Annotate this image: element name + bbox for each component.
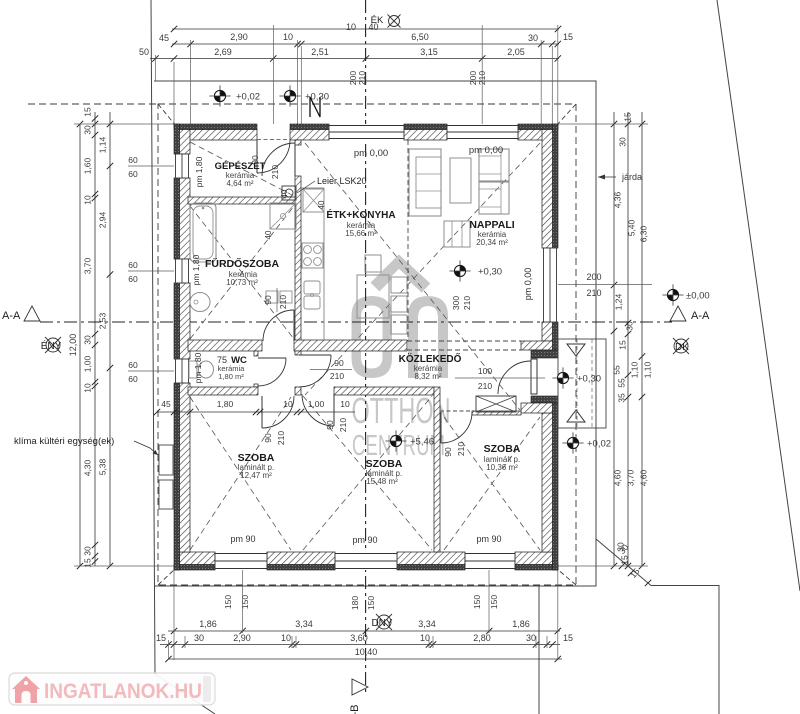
svg-text:6,50: 6,50 bbox=[411, 32, 429, 42]
svg-text:210: 210 bbox=[278, 295, 288, 309]
svg-text:ÉTK+KONYHA: ÉTK+KONYHA bbox=[326, 208, 395, 221]
svg-text:2,69: 2,69 bbox=[214, 47, 232, 57]
svg-text:180: 180 bbox=[350, 596, 360, 610]
svg-text:4,30: 4,30 bbox=[83, 459, 93, 476]
svg-text:150: 150 bbox=[366, 596, 376, 610]
svg-text:INGATLANOK.HU: INGATLANOK.HU bbox=[44, 680, 202, 703]
svg-text:210: 210 bbox=[456, 442, 466, 456]
svg-text:100: 100 bbox=[478, 366, 492, 376]
svg-text:3,70: 3,70 bbox=[626, 469, 636, 486]
svg-text:10: 10 bbox=[340, 399, 350, 409]
svg-text:150: 150 bbox=[240, 595, 250, 609]
svg-text:±0,00: ±0,00 bbox=[686, 291, 710, 302]
svg-text:2,51: 2,51 bbox=[311, 47, 329, 57]
svg-text:90: 90 bbox=[443, 447, 453, 457]
svg-text:4,60: 4,60 bbox=[639, 469, 649, 486]
svg-text:50: 50 bbox=[139, 47, 149, 57]
svg-text:30: 30 bbox=[83, 546, 93, 556]
svg-text:2,90: 2,90 bbox=[233, 633, 251, 643]
svg-text:2,80: 2,80 bbox=[473, 633, 491, 643]
svg-text:1,80: 1,80 bbox=[217, 399, 234, 409]
svg-text:45: 45 bbox=[161, 399, 171, 409]
svg-text:210: 210 bbox=[477, 71, 487, 85]
svg-text:-B: -B bbox=[349, 705, 361, 714]
svg-text:55: 55 bbox=[612, 365, 622, 375]
svg-text:pm 0,00: pm 0,00 bbox=[469, 145, 503, 156]
svg-text:A-A: A-A bbox=[2, 310, 21, 322]
svg-text:2,53: 2,53 bbox=[98, 312, 108, 329]
svg-text:DNY: DNY bbox=[371, 618, 392, 629]
svg-text:járda: járda bbox=[621, 172, 642, 182]
svg-text:60: 60 bbox=[128, 360, 138, 370]
svg-text:4,36: 4,36 bbox=[613, 191, 623, 208]
svg-text:15: 15 bbox=[618, 340, 628, 350]
svg-text:30: 30 bbox=[618, 137, 628, 147]
svg-text:10: 10 bbox=[83, 195, 93, 205]
svg-text:8,32 m²: 8,32 m² bbox=[414, 372, 441, 381]
svg-text:10,73 m²: 10,73 m² bbox=[226, 278, 258, 287]
svg-text:90: 90 bbox=[334, 358, 344, 368]
svg-text:60: 60 bbox=[128, 374, 138, 384]
svg-text:1,24: 1,24 bbox=[614, 293, 624, 310]
svg-text:15: 15 bbox=[83, 107, 93, 117]
svg-text:2,05: 2,05 bbox=[507, 47, 525, 57]
svg-text:+0,02: +0,02 bbox=[236, 92, 260, 103]
svg-text:2,94: 2,94 bbox=[98, 211, 108, 228]
svg-text:SZOBA: SZOBA bbox=[484, 443, 521, 455]
svg-text:Leier LSK20: Leier LSK20 bbox=[317, 176, 367, 186]
svg-text:10: 10 bbox=[283, 32, 293, 42]
svg-text:30: 30 bbox=[616, 542, 626, 552]
svg-text:210: 210 bbox=[586, 288, 601, 298]
svg-text:3,34: 3,34 bbox=[295, 619, 313, 629]
svg-text:ÉNY: ÉNY bbox=[41, 339, 62, 352]
svg-text:150: 150 bbox=[489, 595, 499, 609]
svg-text:60: 60 bbox=[128, 155, 138, 165]
svg-text:1,80 m²: 1,80 m² bbox=[218, 372, 244, 381]
svg-text:pm 90: pm 90 bbox=[230, 534, 255, 544]
svg-text:1,60: 1,60 bbox=[83, 157, 93, 174]
svg-text:pm 1,80: pm 1,80 bbox=[193, 352, 203, 383]
svg-text:30: 30 bbox=[194, 633, 204, 643]
svg-text:150: 150 bbox=[472, 595, 482, 609]
svg-text:+0,30: +0,30 bbox=[305, 92, 329, 103]
svg-text:210: 210 bbox=[276, 431, 286, 445]
svg-text:15,66 m²: 15,66 m² bbox=[345, 229, 377, 238]
svg-text:15: 15 bbox=[156, 633, 166, 643]
svg-text:210: 210 bbox=[330, 371, 344, 381]
svg-text:klíma kültéri egység(ek): klíma kültéri egység(ek) bbox=[14, 436, 114, 447]
svg-text:5,38: 5,38 bbox=[98, 458, 108, 475]
svg-text:1,14: 1,14 bbox=[98, 136, 108, 153]
svg-text:15: 15 bbox=[623, 112, 633, 122]
svg-text:10,36 m²: 10,36 m² bbox=[486, 463, 518, 472]
svg-text:60: 60 bbox=[128, 260, 138, 270]
svg-text:1,10: 1,10 bbox=[643, 361, 653, 378]
svg-text:+0,02: +0,02 bbox=[587, 439, 611, 450]
svg-text:pm 1,80: pm 1,80 bbox=[194, 156, 204, 187]
svg-text:FÜRDŐSZOBA: FÜRDŐSZOBA bbox=[205, 257, 279, 270]
svg-text:1,86: 1,86 bbox=[199, 619, 217, 629]
svg-text:150: 150 bbox=[223, 595, 233, 609]
svg-text:90: 90 bbox=[325, 420, 335, 430]
svg-text:4,60: 4,60 bbox=[613, 469, 623, 486]
svg-text:1,00: 1,00 bbox=[83, 355, 93, 372]
svg-text:2,90: 2,90 bbox=[230, 32, 248, 42]
svg-text:15: 15 bbox=[620, 555, 630, 565]
svg-text:35: 35 bbox=[617, 393, 627, 403]
svg-text:30: 30 bbox=[526, 633, 536, 643]
svg-text:40: 40 bbox=[264, 230, 273, 239]
svg-text:15: 15 bbox=[563, 633, 573, 643]
svg-text:210: 210 bbox=[338, 418, 348, 432]
svg-text:ÉK: ÉK bbox=[371, 15, 384, 26]
svg-text:30: 30 bbox=[528, 33, 538, 43]
svg-text:40: 40 bbox=[317, 200, 326, 209]
svg-text:+5,46: +5,46 bbox=[410, 437, 434, 448]
svg-text:3,15: 3,15 bbox=[420, 47, 438, 57]
svg-text:10: 10 bbox=[281, 633, 291, 643]
svg-text:15: 15 bbox=[563, 32, 573, 42]
svg-text:200: 200 bbox=[586, 272, 601, 282]
svg-text:60: 60 bbox=[128, 169, 138, 179]
svg-text:+0,30: +0,30 bbox=[478, 267, 502, 278]
svg-text:10: 10 bbox=[420, 633, 430, 643]
svg-text:30: 30 bbox=[83, 125, 93, 135]
svg-text:10: 10 bbox=[83, 383, 93, 393]
svg-text:210: 210 bbox=[270, 165, 280, 179]
svg-text:12,00: 12,00 bbox=[68, 334, 78, 357]
svg-text:+0,30: +0,30 bbox=[577, 374, 601, 385]
svg-text:210: 210 bbox=[462, 296, 472, 310]
svg-text:1,00: 1,00 bbox=[308, 399, 325, 409]
svg-text:3,70: 3,70 bbox=[83, 257, 93, 274]
svg-text:pm 1,80: pm 1,80 bbox=[191, 254, 201, 285]
svg-text:300: 300 bbox=[451, 296, 461, 310]
svg-text:1,86: 1,86 bbox=[512, 619, 530, 629]
svg-text:90: 90 bbox=[263, 295, 273, 305]
svg-text:pm 90: pm 90 bbox=[352, 535, 377, 545]
svg-text:1,10: 1,10 bbox=[630, 361, 640, 378]
svg-text:A-A: A-A bbox=[691, 310, 710, 322]
svg-text:45: 45 bbox=[159, 33, 169, 43]
svg-text:20,34 m²: 20,34 m² bbox=[476, 238, 508, 247]
svg-text:DK: DK bbox=[675, 342, 689, 353]
svg-text:40: 40 bbox=[280, 189, 289, 198]
svg-text:10: 10 bbox=[283, 399, 293, 409]
svg-text:6,30: 6,30 bbox=[639, 225, 649, 242]
svg-text:210: 210 bbox=[478, 381, 492, 391]
svg-text:90: 90 bbox=[263, 433, 273, 443]
svg-text:30: 30 bbox=[83, 335, 93, 345]
svg-text:60: 60 bbox=[128, 274, 138, 284]
svg-text:55: 55 bbox=[617, 378, 627, 388]
svg-text:pm 0,00: pm 0,00 bbox=[354, 148, 388, 159]
svg-text:5,40: 5,40 bbox=[627, 219, 637, 236]
svg-text:4,64 m²: 4,64 m² bbox=[226, 179, 253, 188]
svg-text:pm 0,00: pm 0,00 bbox=[523, 268, 533, 301]
svg-text:10: 10 bbox=[346, 22, 356, 32]
svg-text:3,34: 3,34 bbox=[418, 619, 436, 629]
svg-text:15,48 m²: 15,48 m² bbox=[366, 477, 398, 486]
svg-text:12,47 m²: 12,47 m² bbox=[240, 471, 272, 480]
svg-text:pm 90: pm 90 bbox=[476, 534, 501, 544]
